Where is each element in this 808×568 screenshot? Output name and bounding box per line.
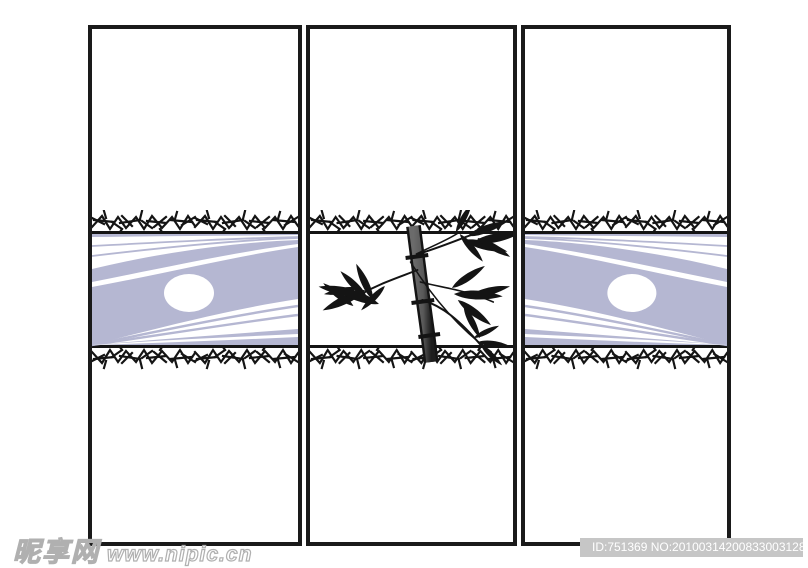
nipic-url-text: www.nipic.cn [107, 543, 252, 567]
bamboo-stalk [406, 226, 440, 362]
right-band-graphic [525, 210, 727, 370]
artboard: 昵享网 www.nipic.cn ID:751369 NO:2010031420… [0, 0, 808, 568]
nipic-logo-text: 昵享网 [13, 530, 100, 568]
ray-band-left [92, 234, 298, 345]
bamboo-graphic [310, 210, 513, 370]
image-id-watermark: ID:751369 NO:20100314200833003128 [580, 538, 803, 557]
image-id-text: ID:751369 NO:20100314200833003128 [592, 540, 803, 554]
nipic-watermark: 昵享网 www.nipic.cn [13, 530, 252, 568]
ray-band-right [525, 234, 727, 345]
left-band-graphic [92, 210, 298, 370]
